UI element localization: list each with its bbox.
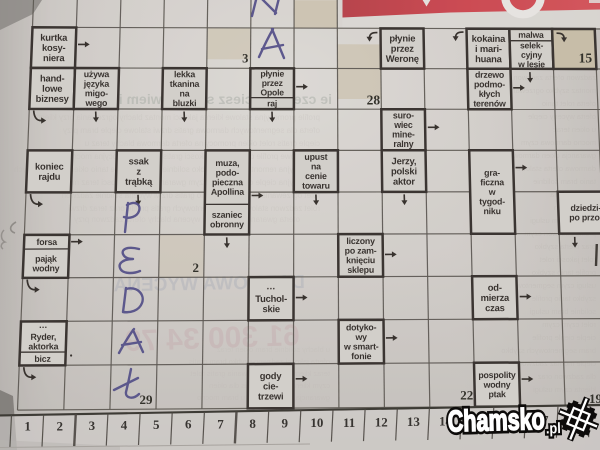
svg-text:.pl: .pl (546, 420, 561, 437)
svg-text:Chamsko: Chamsko (447, 403, 545, 439)
